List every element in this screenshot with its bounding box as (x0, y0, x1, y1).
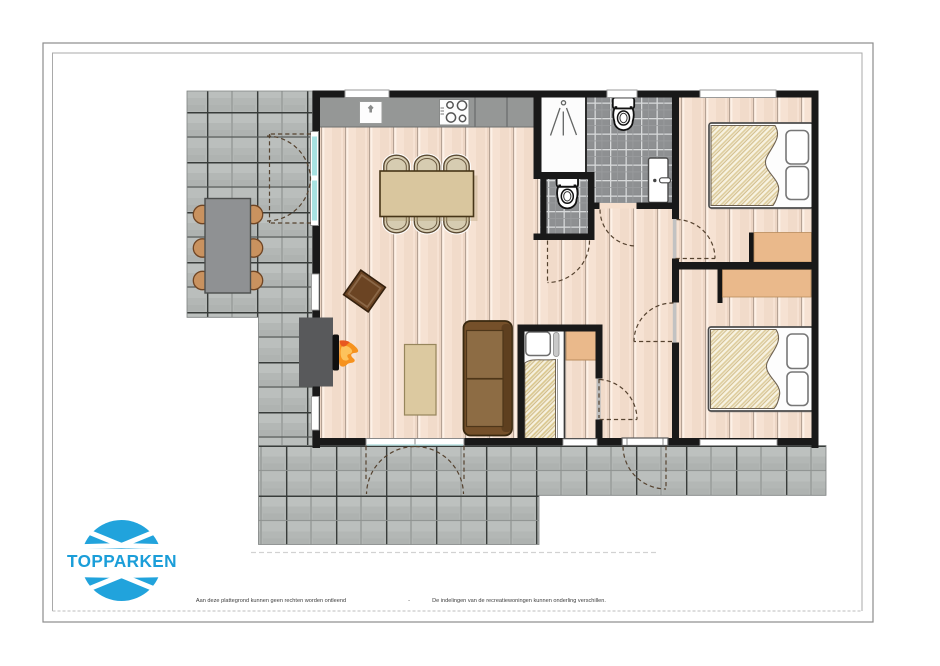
svg-text:Aan deze plattegrond kunnen ge: Aan deze plattegrond kunnen geen rechten… (196, 598, 346, 604)
svg-text:TOPPARKEN: TOPPARKEN (67, 551, 177, 571)
svg-text:-: - (408, 598, 410, 604)
svg-text:De indelingen van de recreatie: De indelingen van de recreatiewoningen k… (432, 598, 606, 604)
